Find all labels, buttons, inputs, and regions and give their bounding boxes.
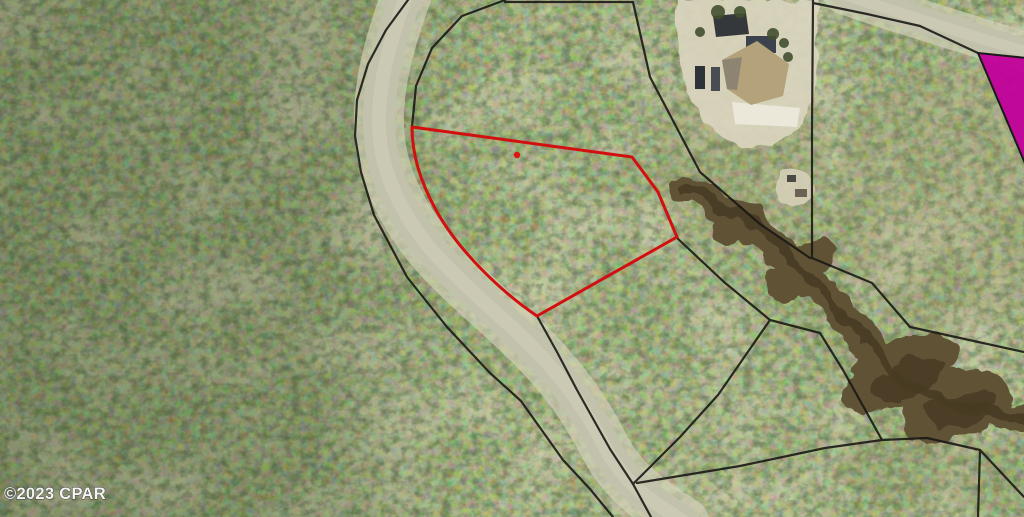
parked-vehicle (711, 67, 720, 91)
shed (787, 175, 796, 182)
tree (767, 28, 779, 40)
forest-texture (0, 0, 1024, 517)
copyright-watermark: ©2023 CPAR (4, 485, 106, 503)
subject-parcel-marker-dot (514, 152, 520, 158)
shed (795, 189, 807, 197)
tree (711, 5, 725, 19)
tree (783, 52, 793, 62)
tree (779, 38, 789, 48)
aerial-map-image: ©2023 CPAR (0, 0, 1024, 517)
boundary-line-house-west-vertical (812, 0, 813, 258)
tree (734, 6, 746, 18)
parked-vehicle (695, 66, 705, 89)
tree (695, 27, 705, 37)
map-svg: ©2023 CPAR (0, 0, 1024, 517)
